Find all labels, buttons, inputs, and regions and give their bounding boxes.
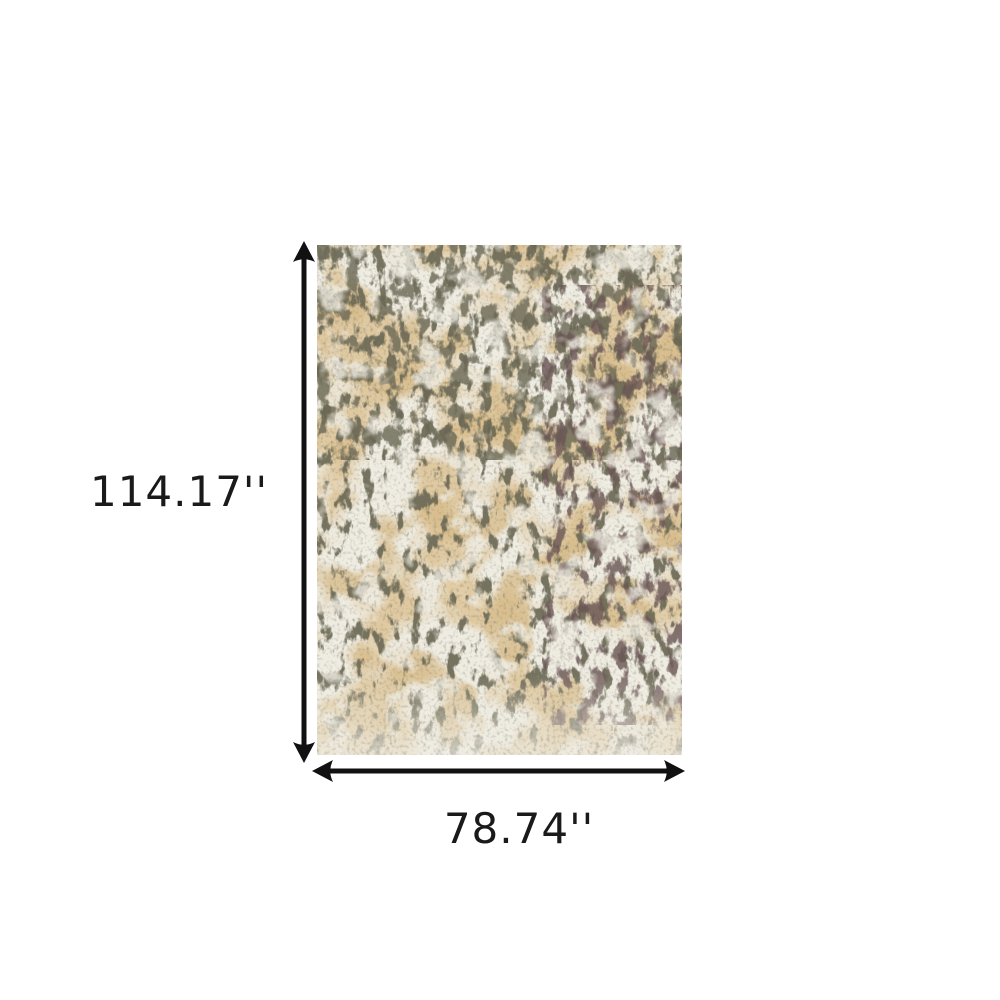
width-dimension-arrow [312,760,685,782]
right-arrowhead-icon [664,760,685,782]
height-dimension-arrow [293,241,315,763]
down-arrowhead-icon [293,742,315,763]
height-dimension-label: 114.17'' [69,462,289,522]
width-dimension-label: 78.74'' [409,801,629,857]
left-arrowhead-icon [312,760,333,782]
product-dimension-diagram: 114.17'' 78.74'' [0,0,1000,1000]
up-arrowhead-icon [293,241,315,262]
rug-image [317,245,682,755]
